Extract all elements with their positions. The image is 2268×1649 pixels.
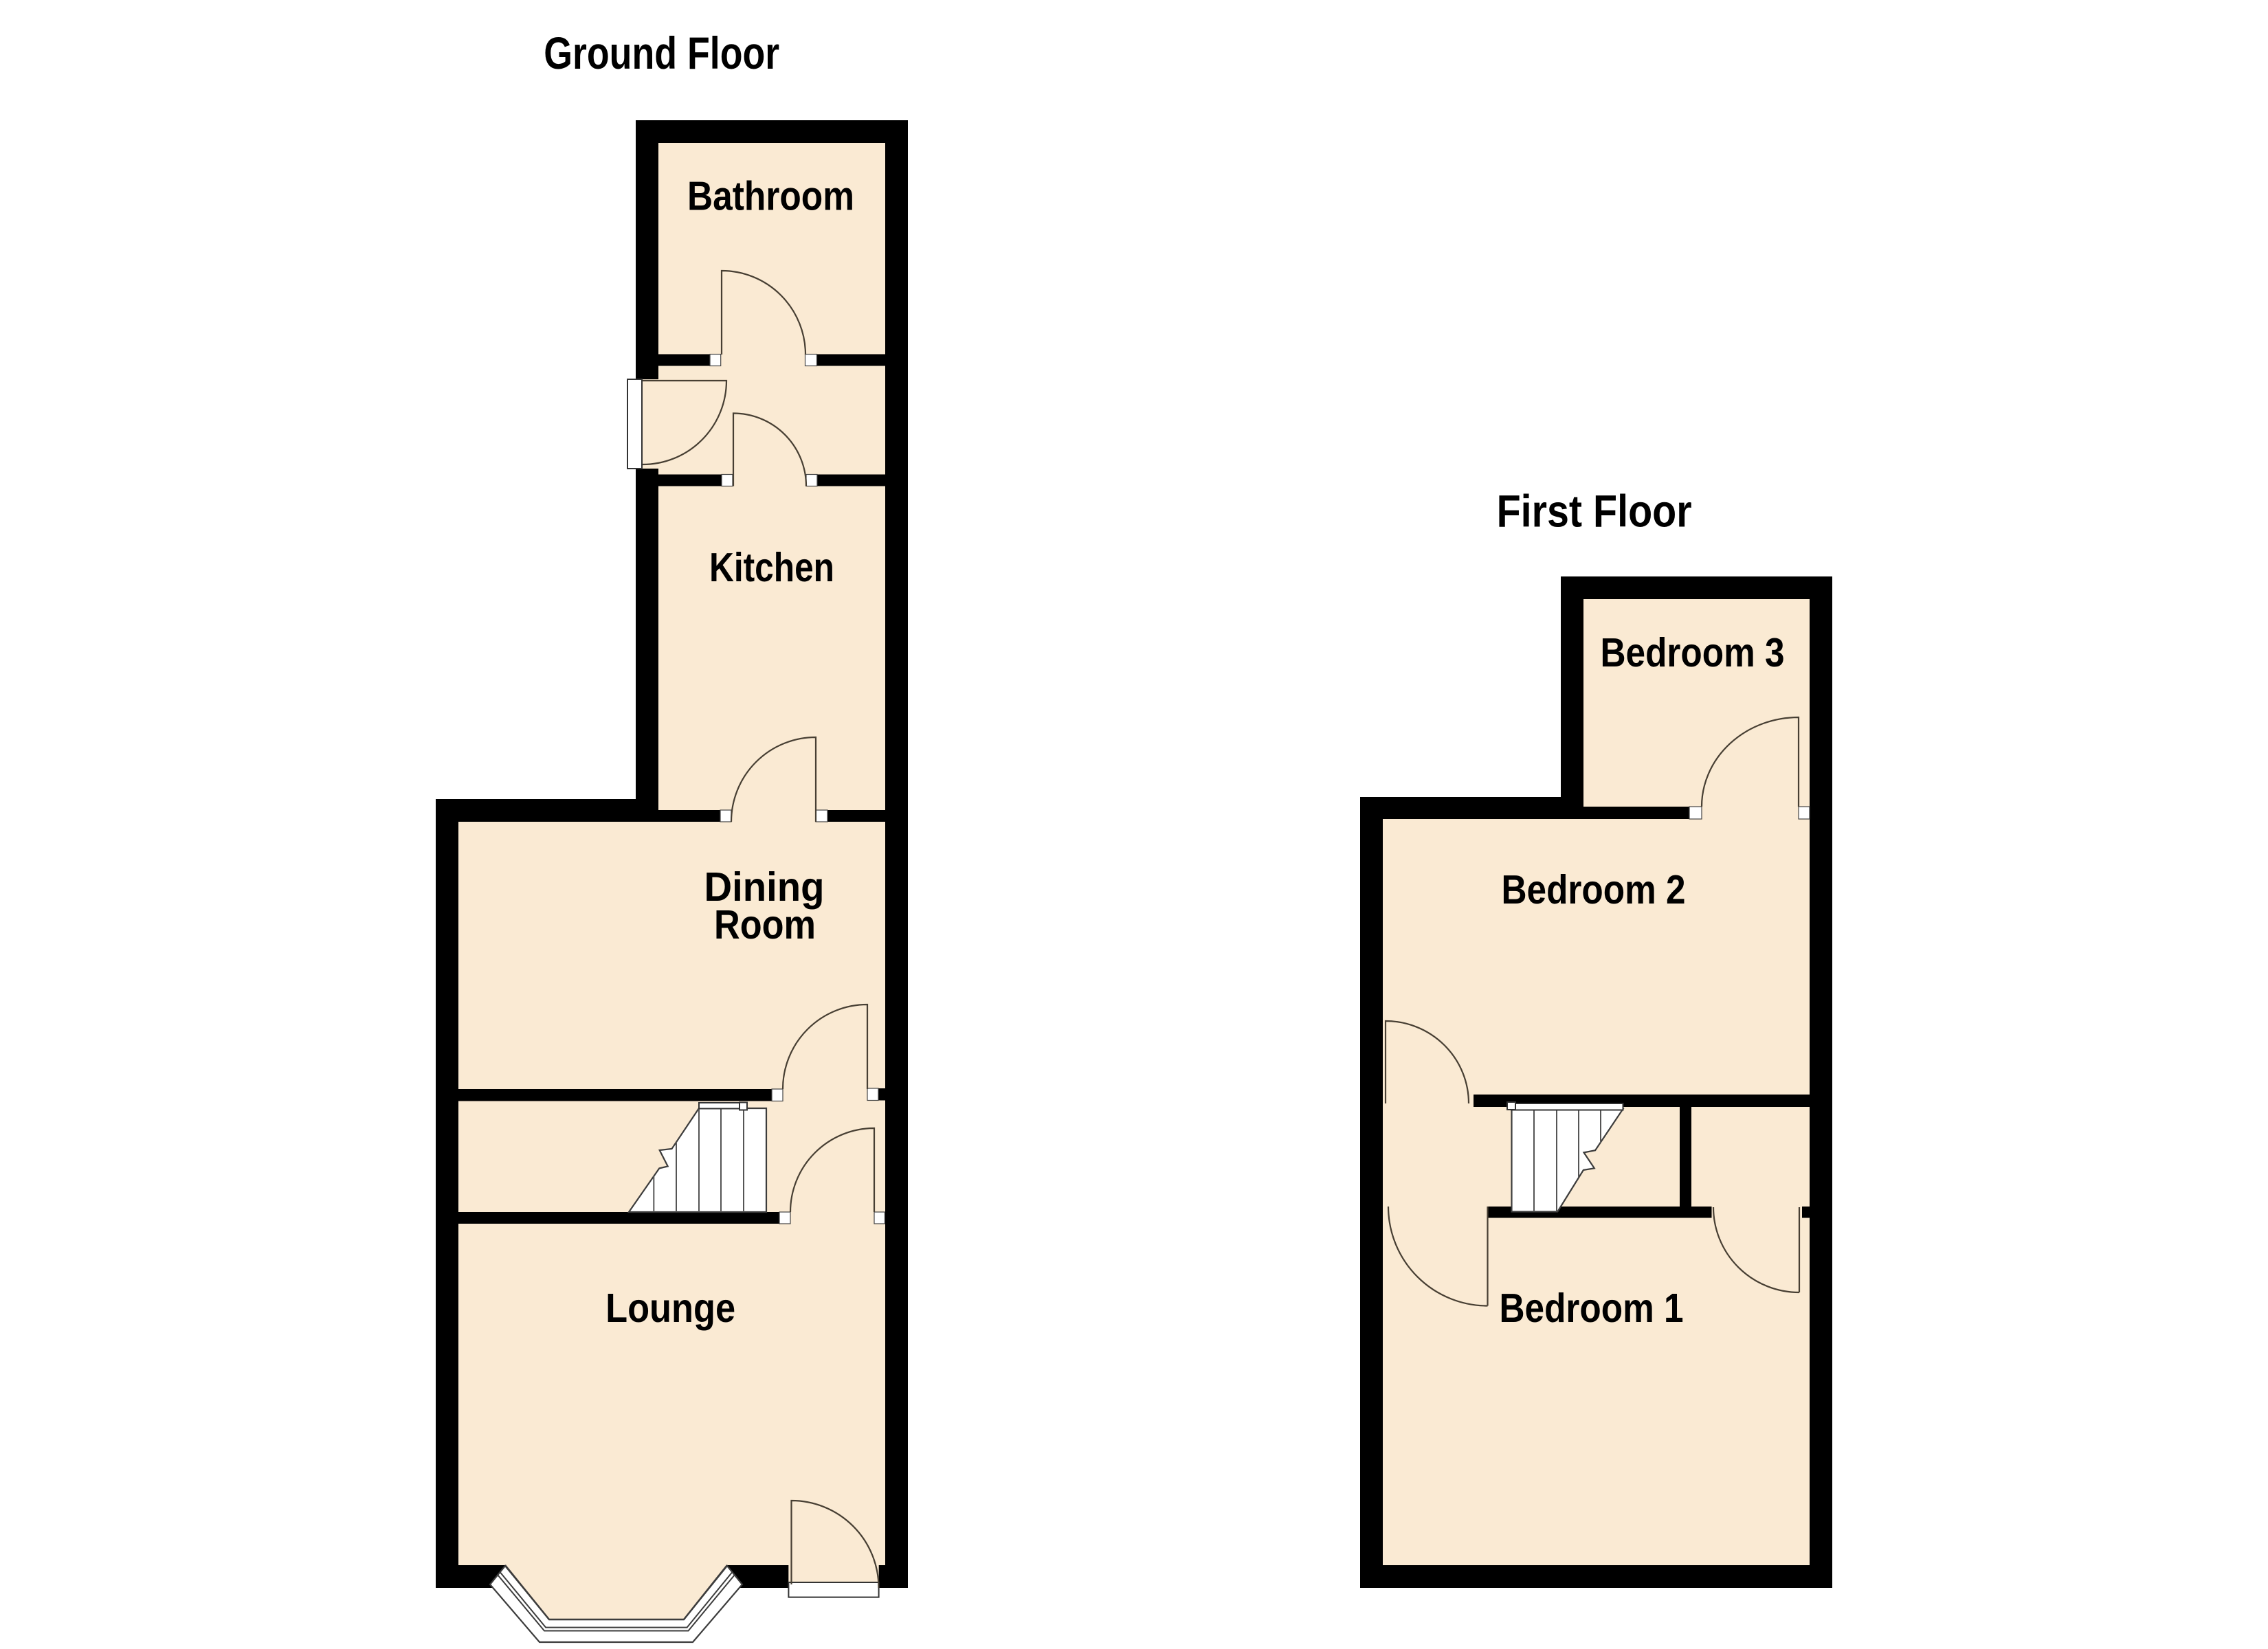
svg-text:Lounge: Lounge [605, 1286, 735, 1331]
svg-text:Room: Room [714, 902, 816, 947]
svg-text:Kitchen: Kitchen [709, 545, 834, 590]
svg-text:First Floor: First Floor [1497, 485, 1692, 536]
svg-text:Bedroom 2: Bedroom 2 [1502, 867, 1686, 912]
svg-text:Bathroom: Bathroom [687, 174, 854, 219]
svg-text:Ground Floor: Ground Floor [544, 27, 779, 78]
svg-text:Bedroom 1: Bedroom 1 [1500, 1286, 1684, 1331]
svg-text:Bedroom 3: Bedroom 3 [1601, 630, 1785, 675]
